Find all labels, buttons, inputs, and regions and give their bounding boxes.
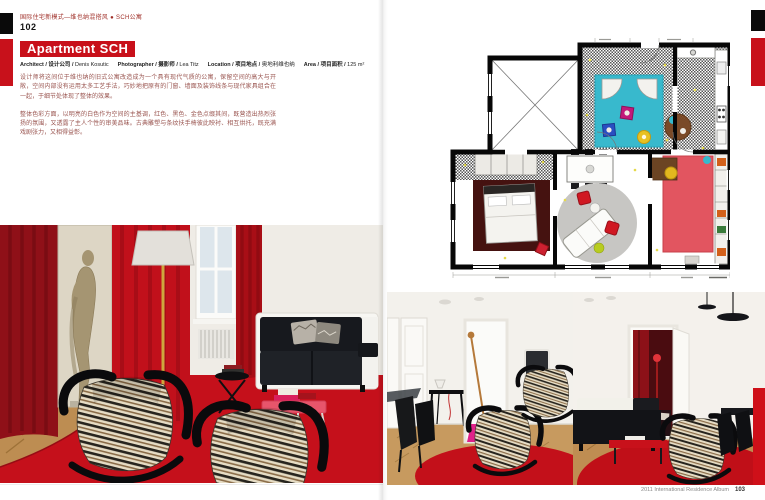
project-title-banner: Apartment SCH xyxy=(20,41,135,57)
plan-round-table xyxy=(665,114,691,140)
left-corner-black-mark xyxy=(0,13,13,34)
credit-photographer: Photographer / 摄影师 / Lea Titz xyxy=(118,60,199,68)
footer-album-title: 2011 International Residence Album xyxy=(641,487,729,493)
footer: 2011 International Residence Album 103 xyxy=(641,487,745,493)
floor-plan xyxy=(445,20,730,282)
series-kicker: 国际住宅新模式—维也纳混搭风 ● SCH公寓 xyxy=(20,12,142,21)
photo-hallway xyxy=(387,292,573,485)
radiator xyxy=(198,329,234,359)
photo-lounge xyxy=(573,292,765,485)
credit-architect: Architect / 设计公司 / Denis Kosutic xyxy=(20,60,109,68)
page-gutter-shadow xyxy=(378,0,388,500)
intro-paragraph-2: 整体色彩方面，以明亮的白色作为空间的主基调，红色、黑色、金色点缀其间，既营造出热… xyxy=(20,111,276,139)
project-credits: Architect / 设计公司 / Denis Kosutic Photogr… xyxy=(20,60,370,68)
window xyxy=(193,225,239,324)
intro-paragraph-1: 设计师将这间位于维也纳的旧式公寓改造成为一个具有现代气质的公寓，保留空间的高大与… xyxy=(20,74,276,102)
photo-bottom-edge xyxy=(0,484,383,485)
intro-text: 设计师将这间位于维也纳的旧式公寓改造成为一个具有现代气质的公寓，保留空间的高大与… xyxy=(20,74,276,148)
credit-location: Location / 项目地点 / 奥地利维也纳 xyxy=(208,60,295,68)
left-corner-red-bar xyxy=(0,39,13,86)
book-spread: 国际住宅新模式—维也纳混搭风 ● SCH公寓 102 Apartment SCH… xyxy=(0,0,765,500)
photo-lounge-graphic xyxy=(573,292,765,485)
curtain-right-edge xyxy=(753,388,765,485)
right-corner-red-bar xyxy=(751,38,765,86)
credit-area: Area / 项目面积 / 125 m² xyxy=(304,60,365,68)
floor-plan-graphic xyxy=(445,20,730,282)
photo-living-room-statue xyxy=(0,225,383,483)
photo-living-room-graphic xyxy=(0,225,383,483)
right-corner-black-mark xyxy=(751,10,765,31)
photo-hallway-graphic xyxy=(387,292,573,485)
plan-bed xyxy=(484,184,538,244)
page-number-left: 102 xyxy=(20,22,37,32)
black-leather-sofa xyxy=(256,313,378,392)
page-number-right: 103 xyxy=(735,487,745,493)
